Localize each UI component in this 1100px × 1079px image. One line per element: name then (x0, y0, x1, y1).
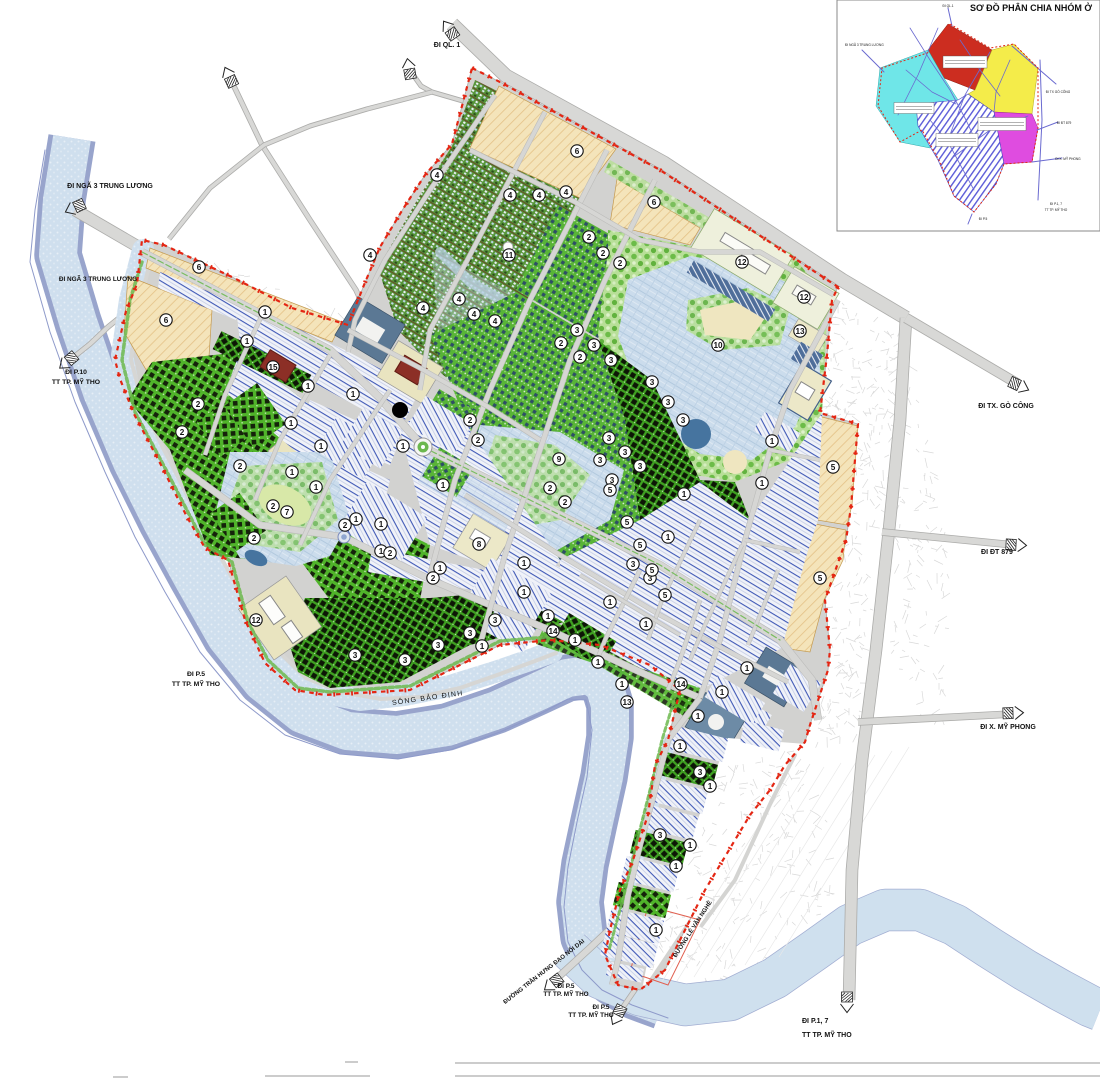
svg-text:1: 1 (379, 547, 384, 556)
svg-text:ĐI P.5: ĐI P.5 (558, 983, 575, 990)
svg-text:3: 3 (638, 462, 643, 471)
svg-text:4: 4 (421, 304, 426, 313)
svg-text:10: 10 (713, 341, 723, 350)
svg-text:ĐI P.5: ĐI P.5 (593, 1004, 610, 1011)
svg-text:1: 1 (720, 688, 725, 697)
svg-text:1: 1 (682, 490, 687, 499)
svg-text:3: 3 (353, 651, 358, 660)
svg-text:ĐI X. MỸ PHONG: ĐI X. MỸ PHONG (980, 722, 1036, 731)
svg-text:1: 1 (441, 481, 446, 490)
svg-text:2: 2 (578, 353, 583, 362)
svg-text:1: 1 (289, 419, 294, 428)
svg-text:ĐI TX. GÒ CÔNG: ĐI TX. GÒ CÔNG (978, 401, 1034, 410)
svg-text:3: 3 (623, 448, 628, 457)
svg-text:ĐI X. MỸ PHONG: ĐI X. MỸ PHONG (1055, 156, 1081, 161)
svg-text:12: 12 (799, 293, 809, 302)
svg-text:5: 5 (831, 463, 836, 472)
svg-text:3: 3 (650, 378, 655, 387)
svg-text:TT TP. MỸ THO: TT TP. MỸ THO (802, 1030, 852, 1039)
svg-text:ĐI P.5: ĐI P.5 (187, 671, 205, 678)
svg-text:1: 1 (354, 515, 359, 524)
svg-text:1: 1 (666, 533, 671, 542)
svg-text:2: 2 (548, 484, 553, 493)
svg-text:6: 6 (652, 198, 657, 207)
svg-text:2: 2 (388, 549, 393, 558)
svg-text:5: 5 (663, 591, 668, 600)
svg-text:2: 2 (271, 502, 276, 511)
svg-text:3: 3 (468, 629, 473, 638)
svg-text:3: 3 (436, 641, 441, 650)
svg-text:1: 1 (696, 712, 701, 721)
svg-text:ĐI P.10: ĐI P.10 (65, 369, 87, 376)
svg-text:ĐI TX GÒ CÔNG: ĐI TX GÒ CÔNG (1046, 89, 1071, 94)
svg-text:1: 1 (314, 483, 319, 492)
svg-text:1: 1 (438, 564, 443, 573)
svg-text:1: 1 (546, 612, 551, 621)
svg-text:2: 2 (343, 521, 348, 530)
svg-text:3: 3 (609, 356, 614, 365)
svg-text:3: 3 (607, 434, 612, 443)
svg-text:2: 2 (238, 462, 243, 471)
svg-text:1: 1 (290, 468, 295, 477)
svg-text:1: 1 (688, 841, 693, 850)
svg-text:1: 1 (596, 658, 601, 667)
svg-text:9: 9 (557, 455, 562, 464)
svg-text:1: 1 (522, 588, 527, 597)
svg-text:1: 1 (620, 680, 625, 689)
svg-text:1: 1 (263, 308, 268, 317)
svg-text:13: 13 (795, 327, 805, 336)
svg-text:15: 15 (268, 363, 278, 372)
svg-text:TT TP. MỸ THO: TT TP. MỸ THO (1045, 207, 1068, 212)
svg-text:4: 4 (564, 188, 569, 197)
svg-text:2: 2 (468, 416, 473, 425)
svg-text:12: 12 (737, 258, 747, 267)
svg-text:1: 1 (708, 782, 713, 791)
svg-text:2: 2 (196, 400, 201, 409)
svg-text:5: 5 (818, 574, 823, 583)
svg-text:1: 1 (678, 742, 683, 751)
svg-text:TT TP. MỸ THO: TT TP. MỸ THO (568, 1010, 613, 1019)
svg-text:7: 7 (285, 508, 290, 517)
svg-text:6: 6 (197, 263, 202, 272)
svg-text:3: 3 (631, 560, 636, 569)
svg-text:6: 6 (575, 147, 580, 156)
svg-text:4: 4 (493, 317, 498, 326)
svg-text:14: 14 (676, 680, 686, 689)
svg-text:12: 12 (251, 616, 261, 625)
svg-text:4: 4 (472, 310, 477, 319)
svg-text:1: 1 (480, 642, 485, 651)
svg-text:5: 5 (625, 518, 630, 527)
svg-text:TT TP. MỸ THO: TT TP. MỸ THO (52, 377, 100, 386)
svg-text:ĐI QL.1: ĐI QL.1 (943, 4, 954, 8)
svg-text:1: 1 (351, 390, 356, 399)
svg-text:ĐI ĐT 879: ĐI ĐT 879 (1057, 121, 1072, 125)
svg-text:2: 2 (563, 498, 568, 507)
svg-text:1: 1 (245, 337, 250, 346)
svg-text:3: 3 (575, 326, 580, 335)
svg-text:1: 1 (760, 479, 765, 488)
svg-text:4: 4 (537, 191, 542, 200)
svg-text:ĐI NGÃ 3 TRUNG LƯƠNG: ĐI NGÃ 3 TRUNG LƯƠNG (59, 274, 137, 283)
svg-text:3: 3 (698, 768, 703, 777)
svg-text:1: 1 (674, 862, 679, 871)
svg-text:2: 2 (601, 249, 606, 258)
svg-text:1: 1 (319, 442, 324, 451)
svg-text:5: 5 (608, 486, 613, 495)
svg-text:1: 1 (306, 382, 311, 391)
svg-text:3: 3 (666, 398, 671, 407)
svg-text:3: 3 (681, 416, 686, 425)
svg-text:13: 13 (622, 698, 632, 707)
svg-text:ĐI QL. 1: ĐI QL. 1 (434, 42, 461, 49)
svg-text:3: 3 (493, 616, 498, 625)
svg-text:8: 8 (477, 540, 482, 549)
svg-text:1: 1 (401, 442, 406, 451)
svg-text:ĐI P.1, 7: ĐI P.1, 7 (1050, 202, 1062, 206)
svg-text:4: 4 (457, 295, 462, 304)
svg-text:4: 4 (435, 171, 440, 180)
svg-text:2: 2 (252, 534, 257, 543)
svg-text:TT TP. MỸ THO: TT TP. MỸ THO (172, 679, 220, 688)
svg-text:2: 2 (587, 233, 592, 242)
svg-text:ĐI NGÃ 3 TRUNG LƯƠNG: ĐI NGÃ 3 TRUNG LƯƠNG (845, 42, 884, 47)
svg-text:4: 4 (508, 191, 513, 200)
svg-text:2: 2 (476, 436, 481, 445)
svg-text:3: 3 (403, 656, 408, 665)
svg-text:3: 3 (598, 456, 603, 465)
svg-text:1: 1 (770, 437, 775, 446)
svg-text:1: 1 (654, 926, 659, 935)
svg-text:ĐI NGÃ 3 TRUNG LƯƠNG: ĐI NGÃ 3 TRUNG LƯƠNG (67, 181, 153, 190)
svg-text:2: 2 (431, 574, 436, 583)
svg-text:1: 1 (573, 636, 578, 645)
svg-text:1: 1 (745, 664, 750, 673)
svg-text:1: 1 (644, 620, 649, 629)
svg-text:TT TP. MỸ THO: TT TP. MỸ THO (543, 989, 588, 998)
svg-text:2: 2 (559, 339, 564, 348)
svg-text:ĐI P.1, 7: ĐI P.1, 7 (802, 1018, 828, 1025)
svg-text:5: 5 (638, 541, 643, 550)
svg-text:5: 5 (650, 566, 655, 575)
svg-text:ĐI ĐT 879: ĐI ĐT 879 (981, 549, 1013, 556)
svg-text:3: 3 (592, 341, 597, 350)
svg-text:11: 11 (505, 251, 514, 260)
svg-text:4: 4 (368, 251, 373, 260)
svg-text:1: 1 (379, 520, 384, 529)
svg-text:SƠ ĐỒ PHÂN CHIA NHÓM Ở: SƠ ĐỒ PHÂN CHIA NHÓM Ở (970, 2, 1092, 13)
svg-text:2: 2 (180, 428, 185, 437)
svg-text:1: 1 (608, 598, 613, 607)
svg-text:ĐI P.5: ĐI P.5 (979, 217, 988, 221)
svg-text:3: 3 (658, 831, 663, 840)
svg-text:2: 2 (618, 259, 623, 268)
svg-text:1: 1 (522, 559, 527, 568)
svg-text:14: 14 (548, 627, 558, 636)
svg-text:6: 6 (164, 316, 169, 325)
